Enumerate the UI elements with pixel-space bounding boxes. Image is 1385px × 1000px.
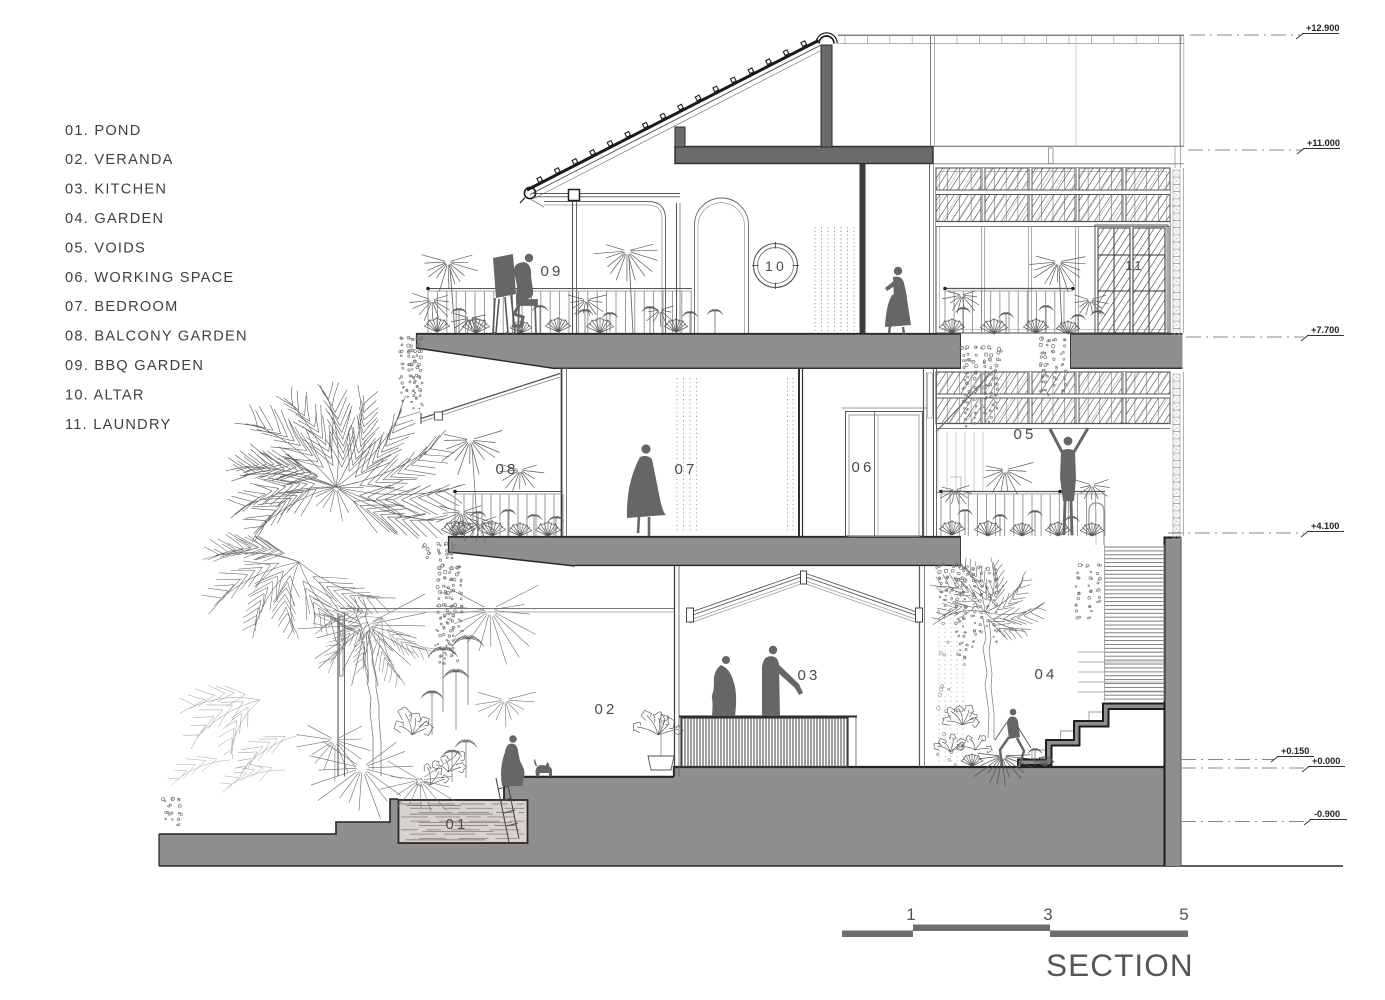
svg-text:3: 3 <box>1043 905 1052 924</box>
svg-text:06: 06 <box>851 459 874 476</box>
svg-text:10: 10 <box>765 258 787 274</box>
svg-text:06. WORKING SPACE: 06. WORKING SPACE <box>65 270 234 286</box>
svg-text:07: 07 <box>674 461 697 478</box>
svg-text:04. GARDEN: 04. GARDEN <box>65 211 164 227</box>
svg-text:08. BALCONY GARDEN: 08. BALCONY GARDEN <box>65 329 248 345</box>
svg-text:07. BEDROOM: 07. BEDROOM <box>65 299 179 315</box>
svg-text:09: 09 <box>540 263 563 280</box>
svg-text:03: 03 <box>797 667 820 684</box>
svg-text:08: 08 <box>495 461 518 478</box>
svg-text:05. VOIDS: 05. VOIDS <box>65 240 146 256</box>
svg-text:+7.700: +7.700 <box>1311 325 1339 335</box>
svg-text:03. KITCHEN: 03. KITCHEN <box>65 182 167 198</box>
svg-text:+12.900: +12.900 <box>1306 23 1339 33</box>
svg-text:10. ALTAR: 10. ALTAR <box>65 387 145 403</box>
svg-text:01. POND: 01. POND <box>65 123 142 139</box>
svg-text:1: 1 <box>906 905 915 924</box>
svg-text:+4.100: +4.100 <box>1311 521 1339 531</box>
svg-text:11: 11 <box>1125 259 1144 273</box>
svg-text:+11.000: +11.000 <box>1307 138 1340 148</box>
svg-text:04: 04 <box>1034 666 1057 683</box>
svg-text:02: 02 <box>594 701 617 718</box>
svg-text:5: 5 <box>1179 905 1188 924</box>
svg-text:05: 05 <box>1013 426 1036 443</box>
svg-text:+0.150: +0.150 <box>1281 746 1309 756</box>
svg-text:11. LAUNDRY: 11. LAUNDRY <box>65 417 172 433</box>
svg-text:09. BBQ GARDEN: 09. BBQ GARDEN <box>65 358 204 374</box>
svg-text:SECTION: SECTION <box>1046 947 1194 983</box>
svg-text:+0.000: +0.000 <box>1312 756 1340 766</box>
svg-text:-0.900: -0.900 <box>1314 809 1340 819</box>
svg-text:02. VERANDA: 02. VERANDA <box>65 152 174 168</box>
svg-text:01: 01 <box>445 816 468 833</box>
